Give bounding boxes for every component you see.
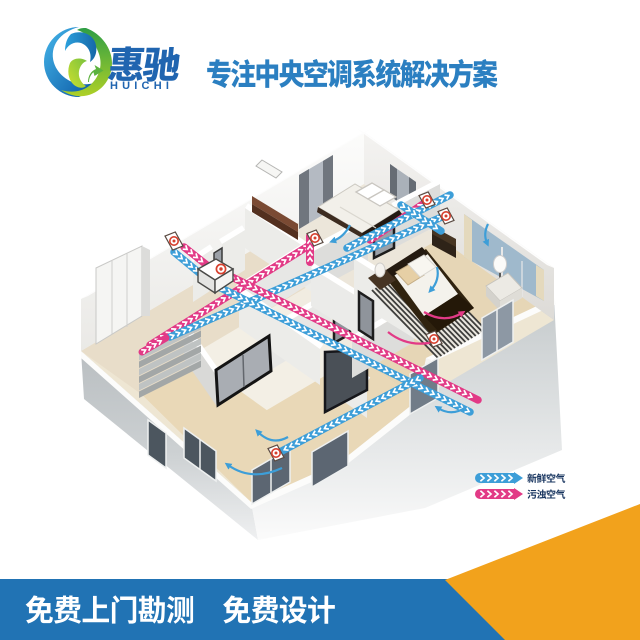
svg-text:HUICHI: HUICHI [110,80,173,92]
